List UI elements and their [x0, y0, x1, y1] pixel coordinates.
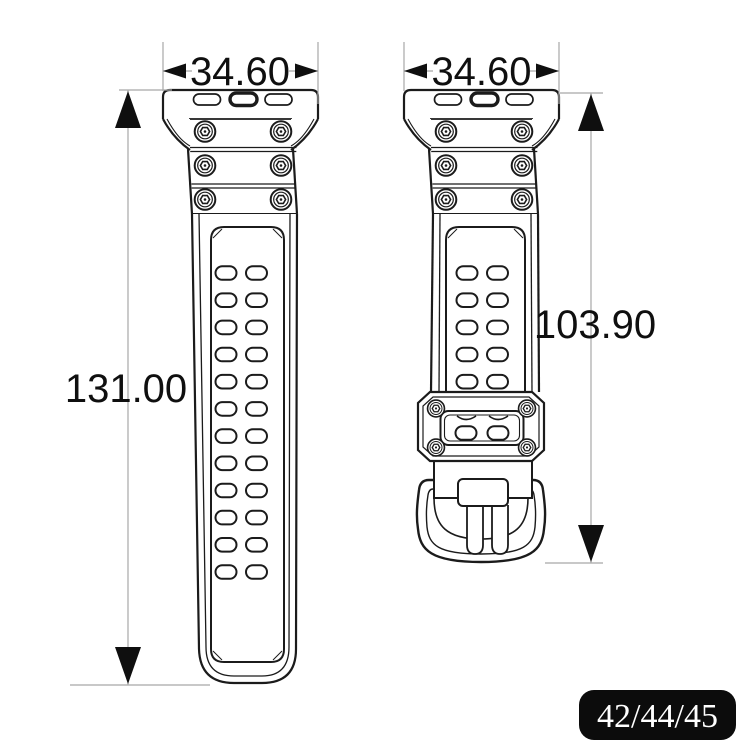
keeper-block: [418, 392, 544, 461]
right-strap-lug-connector: [404, 90, 559, 214]
size-badge-label: 42/44/45: [597, 698, 718, 735]
left-strap-lug-connector: [163, 90, 318, 214]
right-width-label: 34.60: [431, 50, 531, 94]
diagram-canvas: 34.60 34.60 131.00 103.90 42/44/45: [0, 0, 750, 750]
right-length-label: 103.90: [534, 303, 656, 347]
left-width-label: 34.60: [190, 50, 290, 94]
left-length-dimension: 131.00: [65, 90, 210, 685]
right-length-dimension: 103.90: [534, 93, 656, 563]
watch-strap-dimension-drawing: 34.60 34.60 131.00 103.90 42/44/45: [0, 0, 750, 750]
left-length-label: 131.00: [65, 367, 187, 411]
size-badge: 42/44/45: [579, 690, 736, 740]
